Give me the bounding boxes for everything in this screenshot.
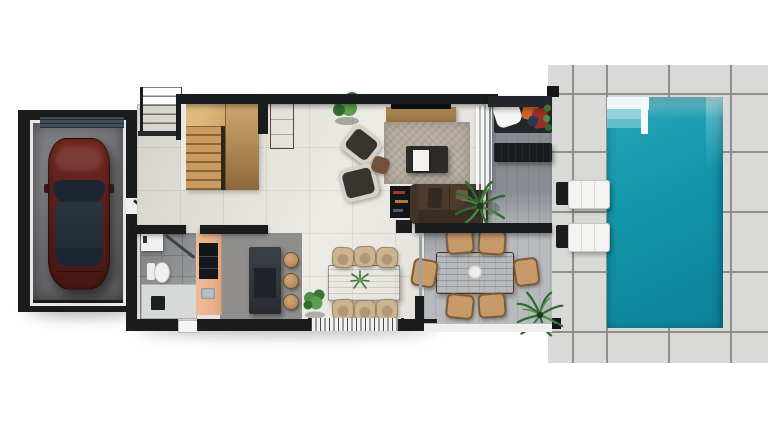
car-roof <box>55 202 103 250</box>
interior-wall <box>133 225 186 234</box>
staircase <box>186 96 258 190</box>
palm-plant <box>514 288 566 342</box>
bar-stool <box>283 273 299 289</box>
sofa-armrest <box>410 184 418 224</box>
exterior-wall-top <box>178 94 498 104</box>
terrace-back-wall <box>488 96 550 107</box>
garage-wall-left <box>18 110 30 312</box>
books <box>393 191 405 194</box>
side-table <box>396 220 412 233</box>
floor-plan-canvas <box>0 0 768 432</box>
toilet <box>154 262 170 283</box>
pergola-beam <box>415 223 552 233</box>
bathroom-vanity <box>141 232 163 251</box>
lounger-cushion <box>568 223 610 252</box>
outdoor-chair <box>410 257 439 289</box>
car-mirror-right <box>108 184 114 193</box>
tv-console <box>386 107 456 123</box>
faucet-icon <box>143 236 147 243</box>
shower <box>141 284 197 319</box>
terrace-glass-panel <box>419 233 422 296</box>
bar-stool <box>283 252 299 268</box>
car-trunk-line <box>56 271 102 272</box>
car-rear-window <box>55 248 103 266</box>
pool-step <box>607 119 643 128</box>
car-hood-gloss <box>56 147 102 171</box>
bar-stool <box>283 294 299 310</box>
books <box>393 209 403 212</box>
bookshelf <box>390 186 412 218</box>
wall-stub <box>258 94 268 134</box>
outdoor-chair <box>477 292 507 319</box>
exterior-wall-bottom <box>197 319 308 331</box>
car-mirror-left <box>44 184 50 193</box>
oven-column <box>199 243 218 279</box>
stair-side-trim <box>181 104 186 190</box>
car <box>48 138 110 290</box>
kitchen-sink <box>201 288 215 299</box>
pool-step-divider <box>641 97 648 134</box>
dining-chair <box>331 246 354 268</box>
stair-flight-treads <box>186 126 221 190</box>
books <box>395 200 408 203</box>
outdoor-chair <box>445 293 475 321</box>
car-windshield <box>53 180 105 204</box>
swimming-pool <box>607 97 723 328</box>
outdoor-chair <box>477 229 507 256</box>
armchair-cushion <box>341 167 375 199</box>
dining-chair <box>376 247 399 269</box>
kitchen-island <box>249 247 281 314</box>
stair-flight-upper <box>225 96 259 190</box>
island-cooktop <box>254 268 276 298</box>
pool-light-edge <box>706 97 723 169</box>
table-centerpiece-plant <box>348 268 372 292</box>
garage-door <box>40 117 124 128</box>
dining-chair <box>354 246 377 268</box>
fruit-bowl <box>468 265 482 279</box>
throw-blanket <box>427 188 442 209</box>
interior-wall <box>200 225 268 234</box>
exterior-wall-bottom <box>126 319 178 331</box>
hedge-plants <box>543 102 552 132</box>
bathroom-window <box>178 320 199 333</box>
hallway-console <box>270 103 294 149</box>
shower-drain <box>151 296 165 310</box>
outdoor-low-table <box>494 143 552 162</box>
sofa-cushion-seam <box>449 186 450 210</box>
coffee-table-cube <box>413 150 429 171</box>
floor-plant <box>300 284 330 320</box>
terrace-fascia <box>424 323 552 332</box>
sun-lounger <box>556 223 608 250</box>
louvered-window <box>308 318 404 331</box>
outdoor-dining-table <box>436 252 514 294</box>
lounger-cushion <box>568 180 610 209</box>
sun-lounger <box>556 180 608 207</box>
outdoor-chair <box>512 256 541 287</box>
pool-step <box>607 109 643 119</box>
